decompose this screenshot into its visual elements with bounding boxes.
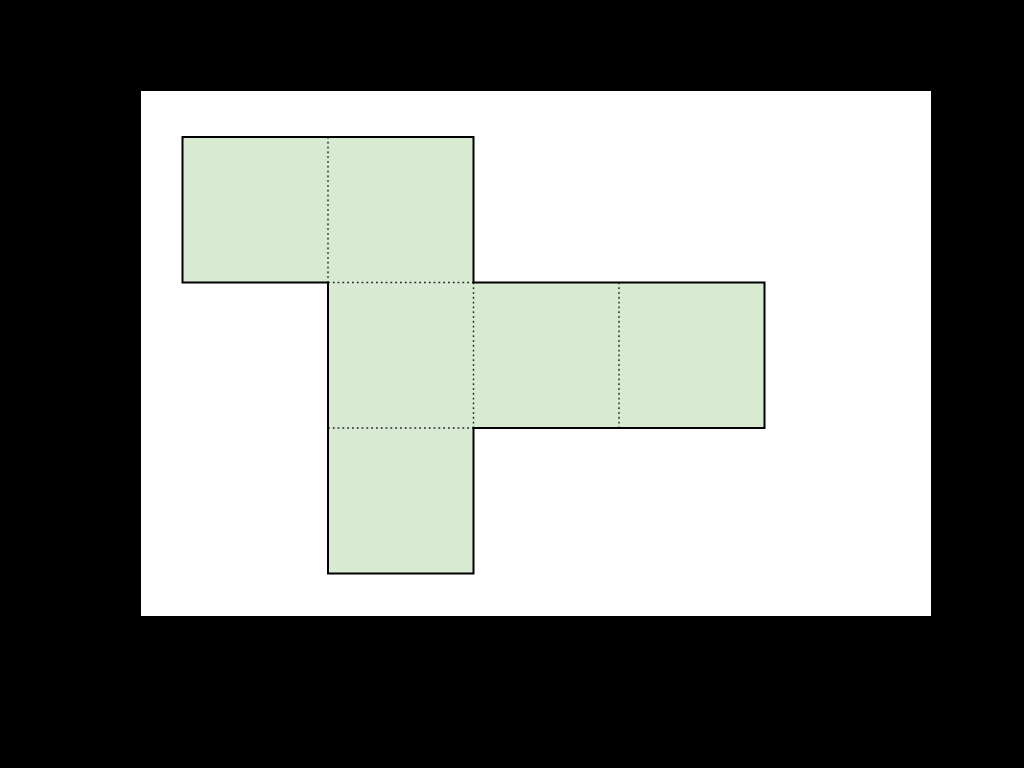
- cube-net-svg: [141, 91, 931, 616]
- net-cell: [474, 283, 620, 429]
- net-cell: [183, 137, 329, 283]
- net-cell: [328, 283, 474, 429]
- net-cell: [328, 428, 474, 574]
- net-cell: [328, 137, 474, 283]
- net-cell: [619, 283, 765, 429]
- figure-canvas: [141, 91, 931, 616]
- page-background: { "figure": { "page_background": "#00000…: [0, 0, 1024, 768]
